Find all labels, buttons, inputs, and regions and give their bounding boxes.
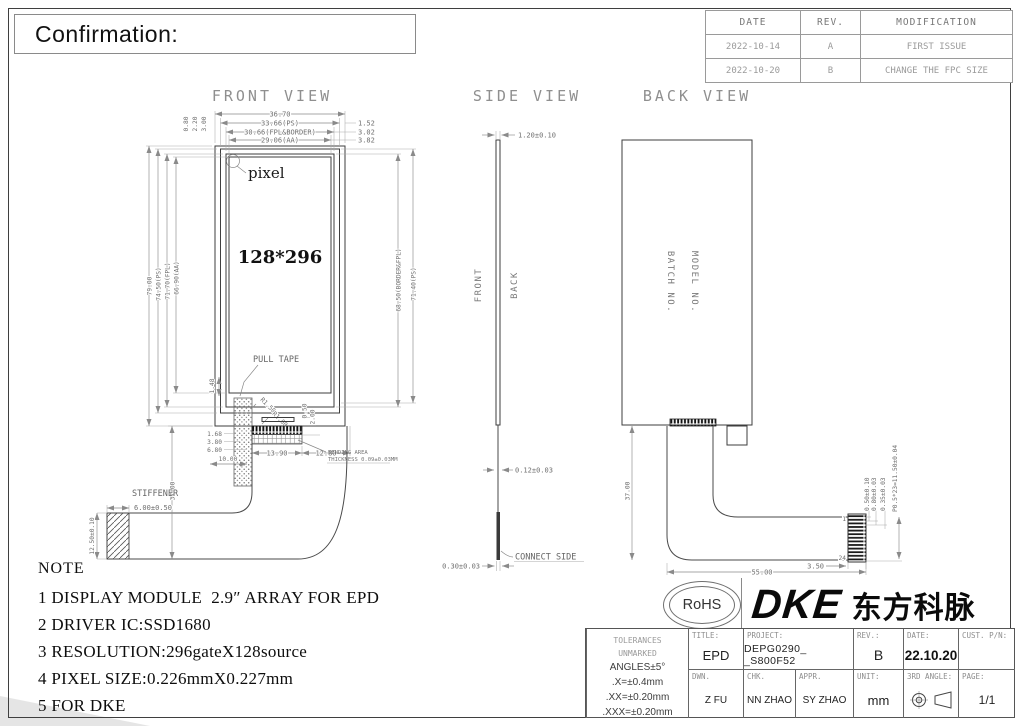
fpc-end-connector [848, 514, 866, 562]
note-heading: NOTE [38, 560, 379, 578]
tolerance-line: .XX=±0.20mm [587, 690, 688, 705]
dim-label: 68.50(BORDER&FPL) [396, 248, 403, 311]
bending-note-line2: THICKNESS 0.09±0.03MM [328, 457, 398, 463]
front-fpl-outline [226, 154, 334, 407]
page-label: PAGE: [962, 672, 985, 681]
page-cell: PAGE: 1/1 [958, 669, 1015, 718]
note-line: 1 DISPLAY MODULE 2.9″ ARRAY FOR EPD [38, 588, 379, 615]
dke-chinese-wordmark: 东方科脉 [852, 583, 976, 627]
rev-cell: REV.: B [853, 629, 903, 669]
cust-pn-label: CUST. P/N: [962, 631, 1007, 640]
dim-label: 3.50 [807, 563, 824, 571]
title-cell: TITLE: EPD [688, 629, 743, 669]
page-value: 1/1 [959, 682, 1015, 718]
dim-label: 0.50±0.10 [864, 477, 871, 511]
date-cell: DATE: 22.10.20 [903, 629, 958, 669]
back-tab [727, 426, 747, 445]
dim-label: 29.06(AA) [261, 136, 299, 144]
front-view: FRONT VIEW pixel 128*296 36.70 33.66(PS)… [89, 87, 418, 559]
back-view-title: BACK VIEW [643, 87, 751, 105]
third-angle-icon [908, 689, 954, 711]
dim-label: 6.80 [207, 447, 222, 454]
dke-wordmark: DKE [750, 581, 845, 628]
title-label: TITLE: [692, 631, 719, 640]
dim-label: 1.52 [358, 120, 375, 128]
model-no-label: MODEL NO. [689, 251, 699, 313]
project-label: PROJECT: [747, 631, 783, 640]
dim-label: 3.82 [358, 137, 375, 145]
note-block: NOTE 1 DISPLAY MODULE 2.9″ ARRAY FOR EPD… [38, 560, 379, 723]
appr-value: SY ZHAO [796, 682, 853, 718]
appr-label: APPR. [799, 672, 822, 681]
tolerance-line: .XXX=±0.20mm [587, 705, 688, 720]
chk-label: CHK. [747, 672, 765, 681]
front-view-title: FRONT VIEW [212, 87, 332, 105]
dwn-cell: DWN. Z FU [688, 669, 743, 718]
dim-label: 2.00 [310, 409, 317, 424]
stiffener [107, 513, 129, 559]
dim-label: 13.90 [266, 450, 287, 458]
dim-label: 33.66(PS) [261, 119, 299, 127]
dim-label: 12.50±0.10 [89, 517, 96, 555]
stiffener-label: STIFFENER [132, 489, 179, 499]
side-panel [496, 140, 500, 425]
dim-label: 6.00±0.50 [134, 504, 172, 512]
dim-label: 37.00 [625, 481, 632, 500]
note-line: 2 DRIVER IC:SSD1680 [38, 615, 379, 642]
chk-value: NN ZHAO [744, 682, 795, 718]
dim-label: 2.20 [192, 116, 199, 131]
project-value: DEPG0290_ _S800F52 [744, 641, 853, 669]
side-view: SIDE VIEW 1.20±0.10 FRONT BACK 0.12±0.03… [442, 87, 584, 571]
tolerance-line: ANGLES±5° [587, 660, 688, 675]
chk-cell: CHK. NN ZHAO [743, 669, 795, 718]
back-view: BACK VIEW MODEL NO. BATCH NO. 1 24 37.00… [622, 87, 902, 577]
rohs-label: RoHS [683, 597, 722, 613]
dim-label: 1.20±0.10 [518, 132, 556, 140]
cust-pn-cell: CUST. P/N: [958, 629, 1015, 669]
rev-label: REV.: [857, 631, 880, 640]
dke-logo: DKE 东方科脉 [752, 581, 1012, 628]
tolerance-line: TOLERANCES [587, 634, 688, 647]
dim-label: 0.80±0.03 [871, 477, 878, 511]
dim-label: 1.48 [209, 378, 216, 393]
tolerance-line: .X=±0.4mm [587, 675, 688, 690]
dim-label: 10.00 [219, 456, 238, 463]
third-angle-cell: 3RD ANGLE: [903, 669, 958, 718]
dim-label: 1.68 [207, 431, 222, 438]
unit-cell: UNIT: mm [853, 669, 903, 718]
side-view-title: SIDE VIEW [473, 87, 581, 105]
resolution-label: 128*296 [238, 247, 323, 268]
pull-tape [234, 398, 252, 486]
third-angle-label: 3RD ANGLE: [907, 672, 952, 681]
back-connector-pins [670, 419, 716, 426]
date-value: 22.10.20 [904, 641, 958, 669]
dwn-value: Z FU [689, 682, 743, 718]
connect-side-label: CONNECT SIDE [515, 553, 576, 563]
dim-label: 0.80 [183, 116, 190, 131]
dim-label: 0.30±0.03 [442, 563, 480, 571]
pin-24-label: 24 [839, 555, 847, 562]
dwn-label: DWN. [692, 672, 710, 681]
title-value: EPD [689, 641, 743, 669]
unit-value: mm [854, 682, 903, 718]
logo-divider [741, 578, 742, 628]
dim-label: 36.70 [269, 110, 290, 118]
front-connector-body [252, 435, 302, 445]
date-label: DATE: [907, 631, 930, 640]
dim-label: 3.80 [207, 439, 222, 446]
drawing-sheet: Confirmation: DATE REV. MODIFICATION 202… [0, 0, 1017, 726]
dim-label: 71.40(PS) [411, 267, 418, 301]
dim-label: 71.70(FPL) [165, 262, 172, 299]
front-connector-pins [252, 426, 302, 435]
front-ps-outline [221, 149, 340, 413]
side-connector [497, 512, 501, 560]
dim-label: 0.12±0.03 [515, 467, 553, 475]
tolerance-line: UNMARKED [587, 647, 688, 660]
back-fpc-outline [667, 426, 848, 560]
back-outline [622, 140, 752, 425]
dim-label: 3.02 [358, 129, 375, 137]
pin-1-label: 1 [842, 516, 846, 523]
pixel-leader [237, 166, 246, 173]
rev-value: B [854, 641, 903, 669]
pixel-label: pixel [248, 164, 285, 182]
side-back-label: BACK [510, 271, 520, 299]
front-outline [215, 146, 345, 426]
side-front-label: FRONT [474, 268, 484, 303]
note-line: 5 FOR DKE [38, 696, 379, 723]
dim-label: 0.50 [302, 403, 309, 418]
note-line: 3 RESOLUTION:296gateX128source [38, 642, 379, 669]
bending-note-line1: BENDING AREA [328, 450, 368, 456]
dim-label: 3.00 [201, 116, 208, 131]
pixel-callout-circle [227, 155, 240, 168]
appr-cell: APPR. SY ZHAO [795, 669, 853, 718]
dim-label: 0.35±0.03 [880, 477, 887, 511]
title-block: TOLERANCES UNMARKED ANGLES±5° .X=±0.4mm … [585, 628, 1015, 718]
dim-label: 55.00 [751, 569, 772, 577]
cust-pn-value [959, 641, 1015, 669]
note-line: 4 PIXEL SIZE:0.226mmX0.227mm [38, 669, 379, 696]
dim-label: P0.5*23=11.50±0.04 [892, 445, 899, 512]
pull-tape-label: PULL TAPE [253, 355, 299, 365]
dim-label: 79.00 [147, 276, 154, 295]
dim-label: 66.90(AA) [174, 261, 181, 295]
project-cell: PROJECT: DEPG0290_ _S800F52 [743, 629, 853, 669]
unit-label: UNIT: [857, 672, 880, 681]
rohs-logo: RoHS [663, 581, 741, 629]
dim-label: 30.66(FPL&BORDER) [244, 128, 316, 136]
tolerances-cell: TOLERANCES UNMARKED ANGLES±5° .X=±0.4mm … [586, 629, 688, 718]
batch-no-label: BATCH NO. [665, 251, 675, 313]
dim-label: 74.50(PS) [156, 267, 163, 301]
